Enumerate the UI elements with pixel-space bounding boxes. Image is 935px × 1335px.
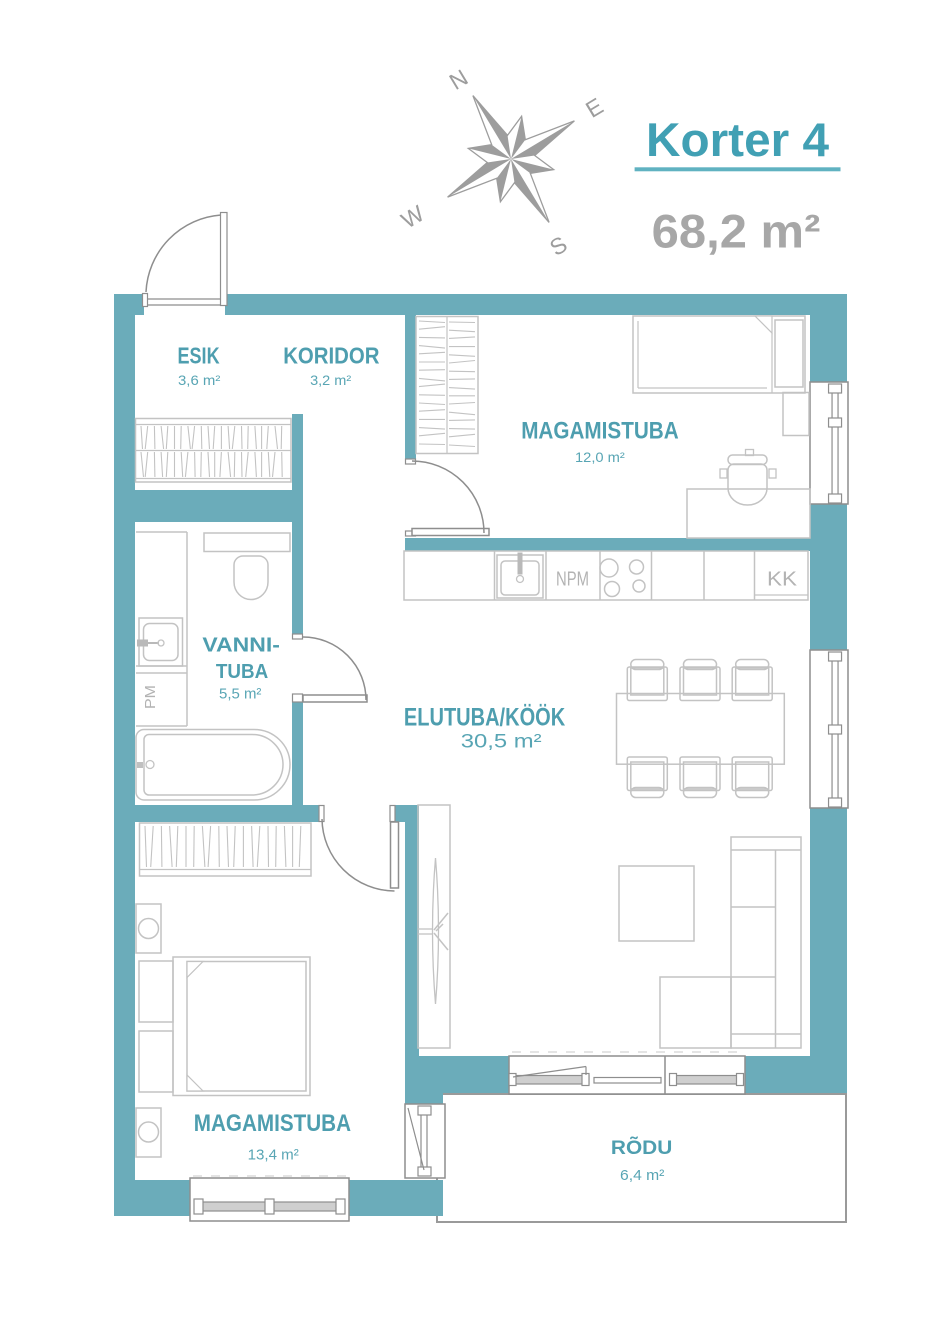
svg-text:12,0 m²: 12,0 m² [575, 449, 625, 465]
svg-text:RÕDU: RÕDU [611, 1137, 672, 1159]
svg-text:ESIK: ESIK [178, 342, 220, 368]
svg-text:5,5 m²: 5,5 m² [219, 686, 261, 703]
svg-text:ELUTUBA/KÖÖK: ELUTUBA/KÖÖK [404, 703, 565, 732]
svg-text:6,4 m²: 6,4 m² [620, 1167, 664, 1184]
svg-text:3,2 m²: 3,2 m² [310, 372, 351, 388]
svg-text:30,5 m²: 30,5 m² [461, 732, 542, 753]
svg-text:KK: KK [767, 568, 798, 590]
svg-text:MAGAMISTUBA: MAGAMISTUBA [521, 417, 679, 444]
svg-text:3,6 m²: 3,6 m² [178, 372, 221, 388]
svg-text:KORIDOR: KORIDOR [283, 342, 380, 368]
svg-text:MAGAMISTUBA: MAGAMISTUBA [194, 1110, 351, 1137]
svg-text:PM: PM [143, 685, 159, 709]
svg-text:Korter 4: Korter 4 [646, 113, 829, 166]
svg-text:68,2 m²: 68,2 m² [652, 204, 821, 257]
svg-text:TUBA: TUBA [216, 661, 268, 683]
svg-text:VANNI-: VANNI- [202, 634, 280, 656]
svg-text:13,4 m²: 13,4 m² [248, 1147, 299, 1164]
svg-text:NPM: NPM [556, 568, 589, 590]
